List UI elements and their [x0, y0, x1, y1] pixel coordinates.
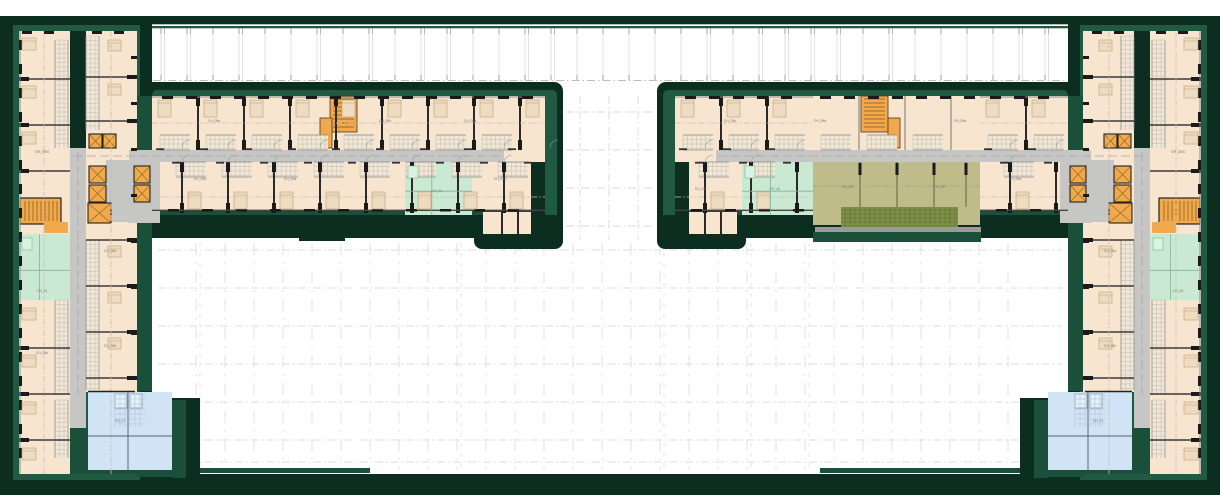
svg-text:CH_05a: CH_05a: [1009, 177, 1022, 181]
svg-text:CH_05b: CH_05b: [724, 119, 737, 123]
svg-text:CH_05a: CH_05a: [494, 177, 507, 181]
svg-text:CH_05a: CH_05a: [954, 119, 967, 123]
svg-text:CH_05a: CH_05a: [284, 177, 297, 181]
svg-text:CH_05a: CH_05a: [1104, 249, 1117, 253]
svg-text:CH_05b: CH_05b: [379, 119, 392, 123]
svg-text:CH_05a: CH_05a: [464, 119, 477, 123]
svg-text:GR_DBS: GR_DBS: [1171, 150, 1186, 154]
svg-text:CH_01: CH_01: [1093, 419, 1104, 423]
svg-text:GR_ER: GR_ER: [934, 185, 946, 189]
svg-text:CH_04: CH_04: [695, 187, 706, 191]
svg-text:CH_05b: CH_05b: [104, 344, 117, 348]
svg-text:CH_05a: CH_05a: [194, 177, 207, 181]
svg-text:CH_05a: CH_05a: [814, 119, 827, 123]
svg-text:CH_01: CH_01: [115, 419, 126, 423]
svg-text:GR_ER: GR_ER: [842, 185, 854, 189]
svg-text:GR_DBS: GR_DBS: [35, 150, 50, 154]
svg-text:CH_05b: CH_05b: [36, 351, 49, 355]
svg-text:CH_05a: CH_05a: [208, 119, 221, 123]
svg-text:CH_05b: CH_05b: [1104, 344, 1117, 348]
svg-text:CH_A1: CH_A1: [37, 289, 48, 293]
svg-text:CH_A1: CH_A1: [432, 189, 443, 193]
svg-text:CH_A1: CH_A1: [1173, 289, 1184, 293]
svg-text:CH_A1: CH_A1: [770, 187, 781, 191]
svg-text:CH_05a: CH_05a: [104, 249, 117, 253]
